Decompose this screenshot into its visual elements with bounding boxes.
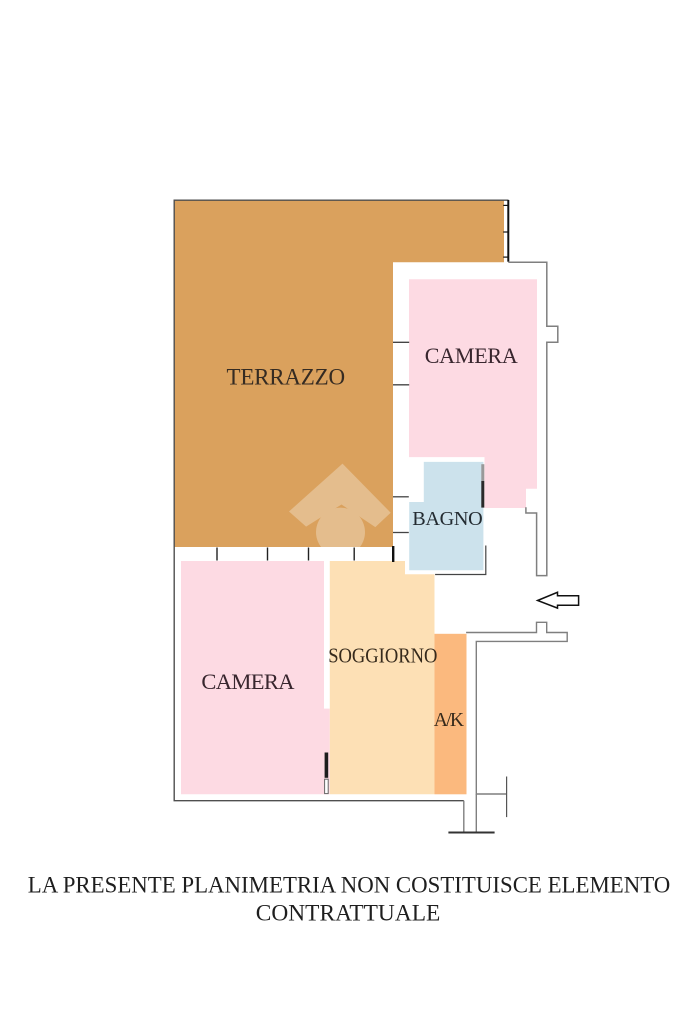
svg-text:CAMERA: CAMERA: [425, 343, 518, 368]
svg-text:CAMERA: CAMERA: [201, 669, 295, 694]
svg-text:A/K: A/K: [434, 710, 464, 731]
svg-text:BAGNO: BAGNO: [412, 508, 483, 530]
svg-text:TERRAZZO: TERRAZZO: [227, 365, 346, 390]
svg-text:SOGGIORNO: SOGGIORNO: [328, 643, 437, 667]
svg-text:CONTRATTUALE: CONTRATTUALE: [256, 901, 440, 926]
svg-text:LA PRESENTE PLANIMETRIA NON CO: LA PRESENTE PLANIMETRIA NON COSTITUISCE …: [28, 872, 671, 897]
